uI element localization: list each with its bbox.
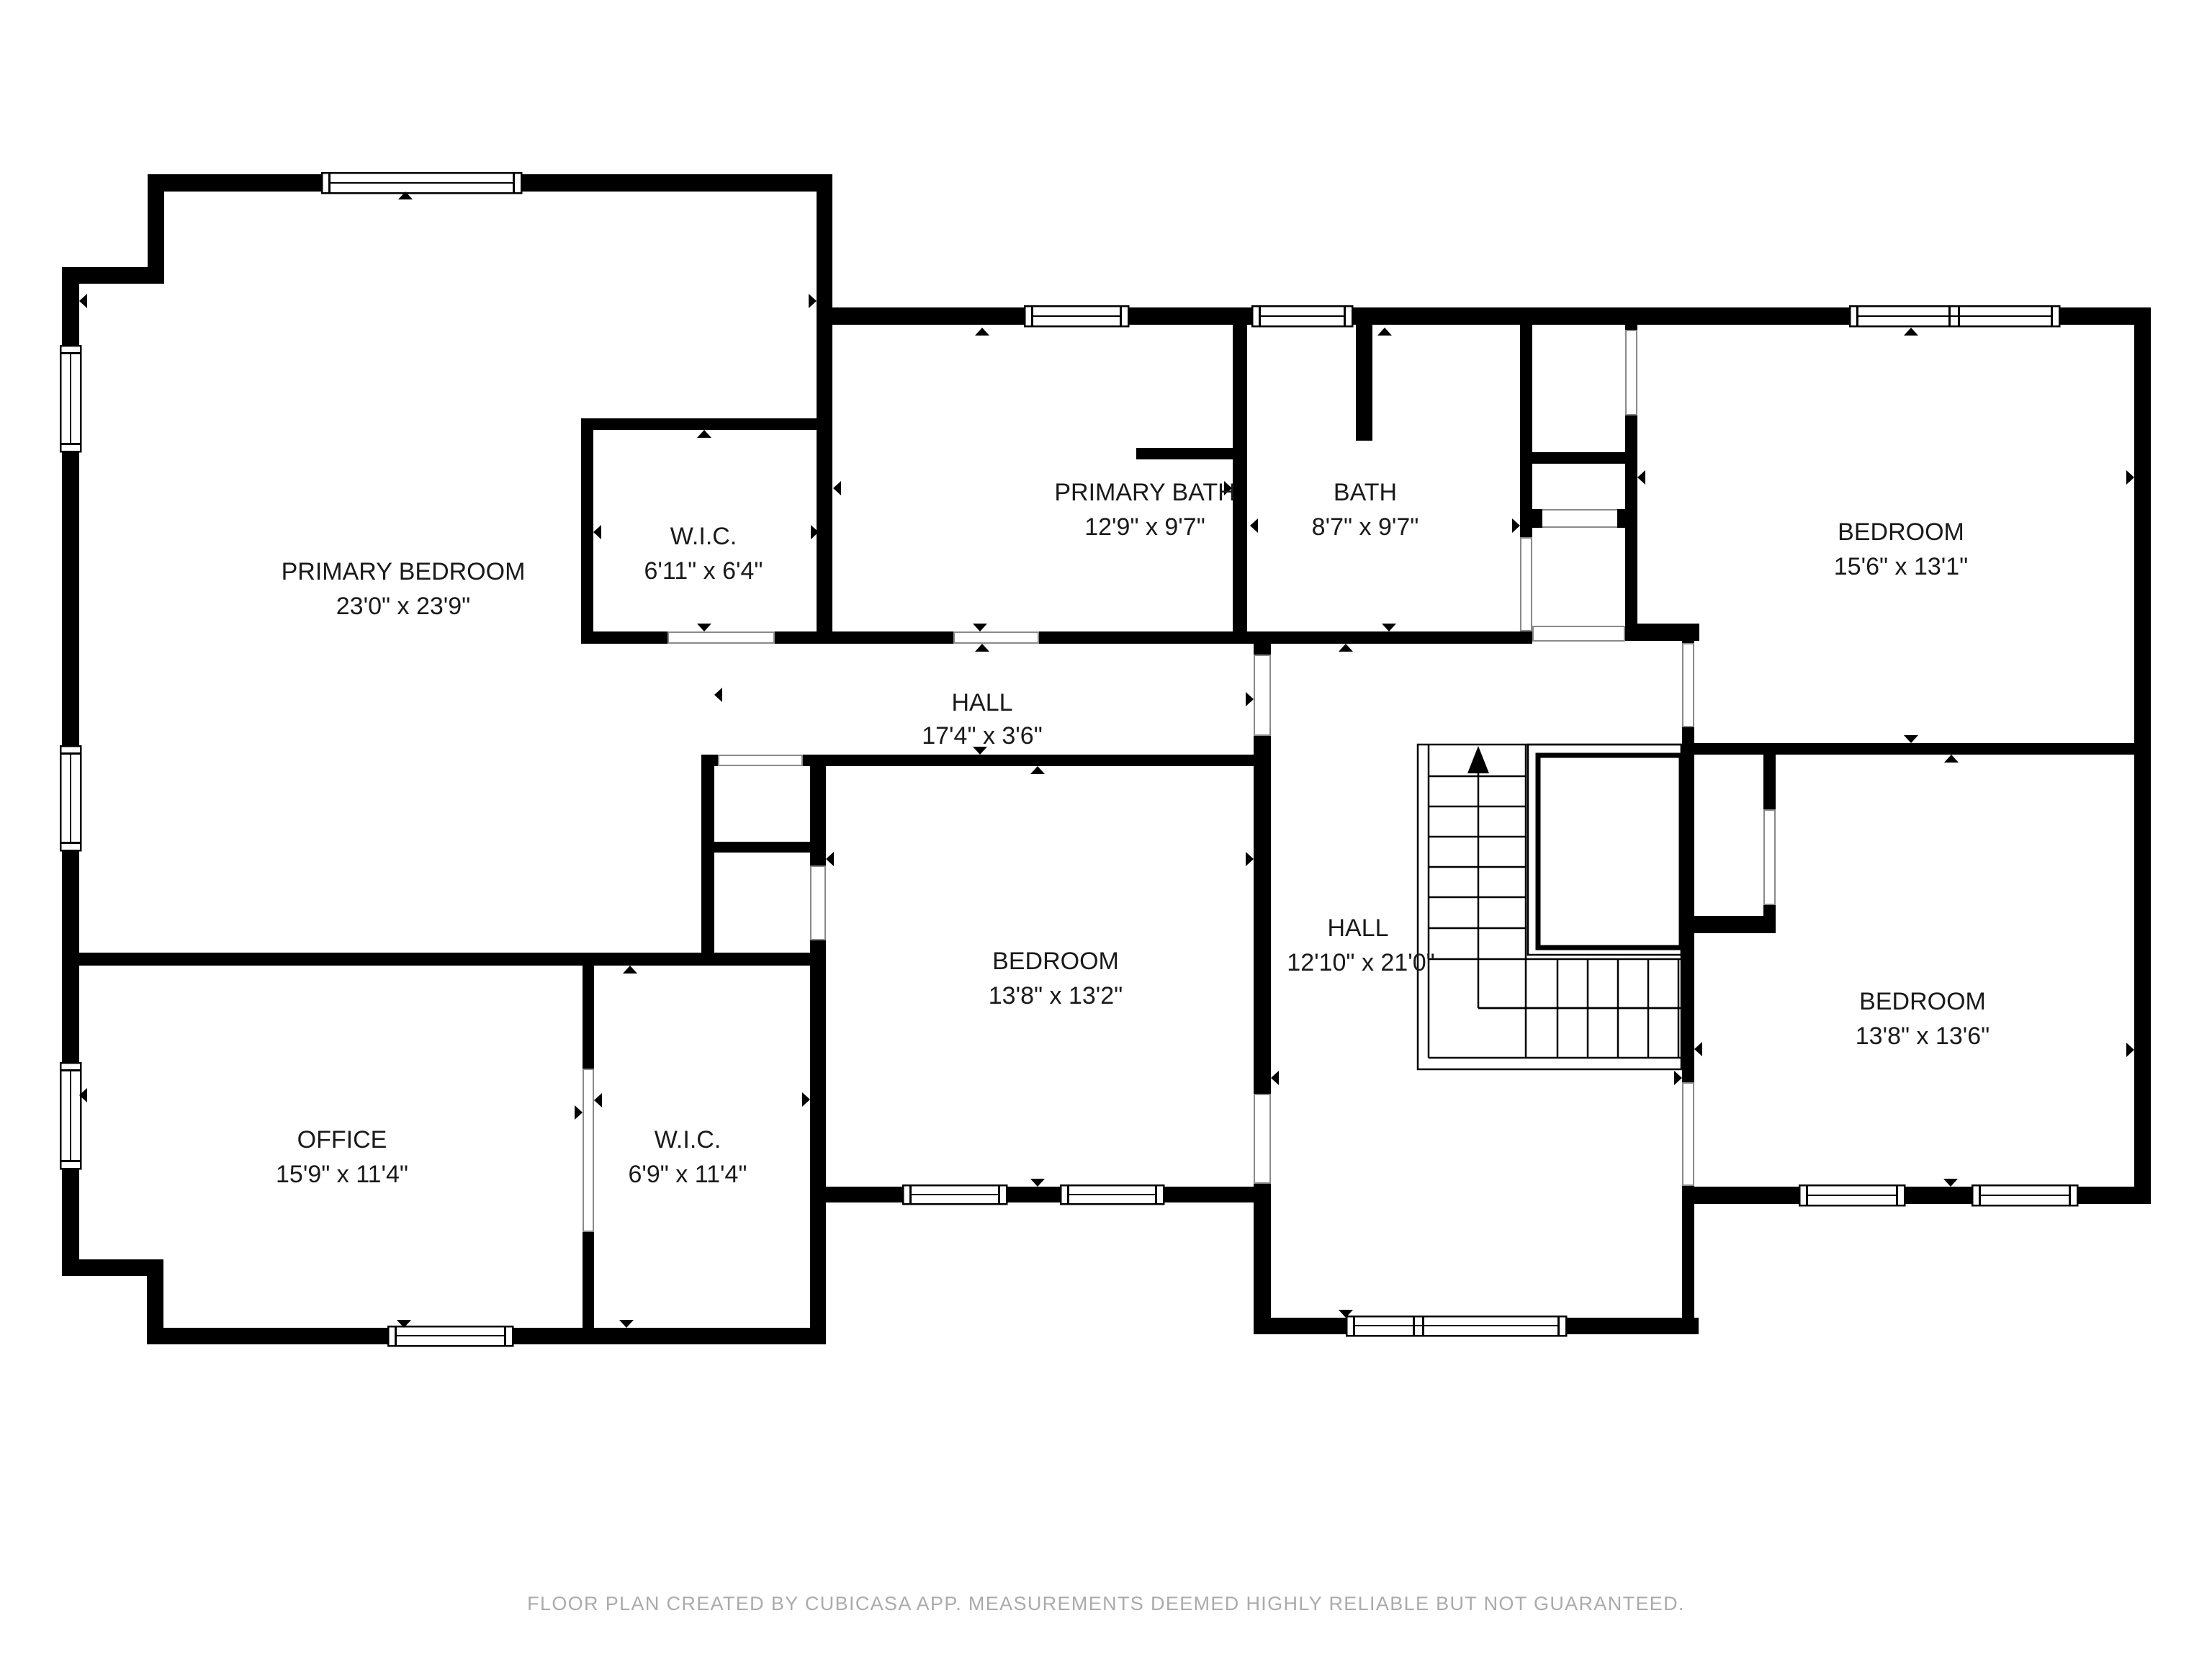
svg-text:15'6" x 13'1": 15'6" x 13'1" [1834,553,1968,580]
svg-text:23'0" x 23'9": 23'0" x 23'9" [336,593,470,620]
svg-text:BEDROOM: BEDROOM [1859,988,1986,1015]
svg-text:BATH: BATH [1334,479,1397,506]
svg-text:HALL: HALL [951,689,1012,716]
svg-text:15'9" x 11'4": 15'9" x 11'4" [276,1161,408,1188]
svg-text:OFFICE: OFFICE [297,1126,387,1154]
svg-text:13'8" x 13'6": 13'8" x 13'6" [1856,1022,1990,1050]
svg-text:17'4" x 3'6": 17'4" x 3'6" [922,722,1043,750]
svg-text:6'9" x 11'4": 6'9" x 11'4" [628,1161,747,1188]
svg-text:W.I.C.: W.I.C. [670,523,737,550]
svg-text:8'7" x 9'7": 8'7" x 9'7" [1312,513,1419,541]
svg-text:PRIMARY BATH: PRIMARY BATH [1054,479,1235,506]
svg-text:BEDROOM: BEDROOM [1838,518,1964,546]
svg-text:13'8" x 13'2": 13'8" x 13'2" [989,982,1123,1010]
svg-text:6'11" x 6'4": 6'11" x 6'4" [644,557,763,585]
svg-text:12'10" x 21'0": 12'10" x 21'0" [1287,949,1434,976]
svg-text:BEDROOM: BEDROOM [992,948,1119,975]
svg-text:FLOOR PLAN CREATED BY CUBICASA: FLOOR PLAN CREATED BY CUBICASA APP. MEAS… [527,1593,1685,1614]
svg-text:HALL: HALL [1327,914,1388,942]
svg-text:12'9" x 9'7": 12'9" x 9'7" [1084,513,1205,541]
svg-text:W.I.C.: W.I.C. [655,1126,721,1154]
svg-text:PRIMARY BEDROOM: PRIMARY BEDROOM [282,558,526,585]
